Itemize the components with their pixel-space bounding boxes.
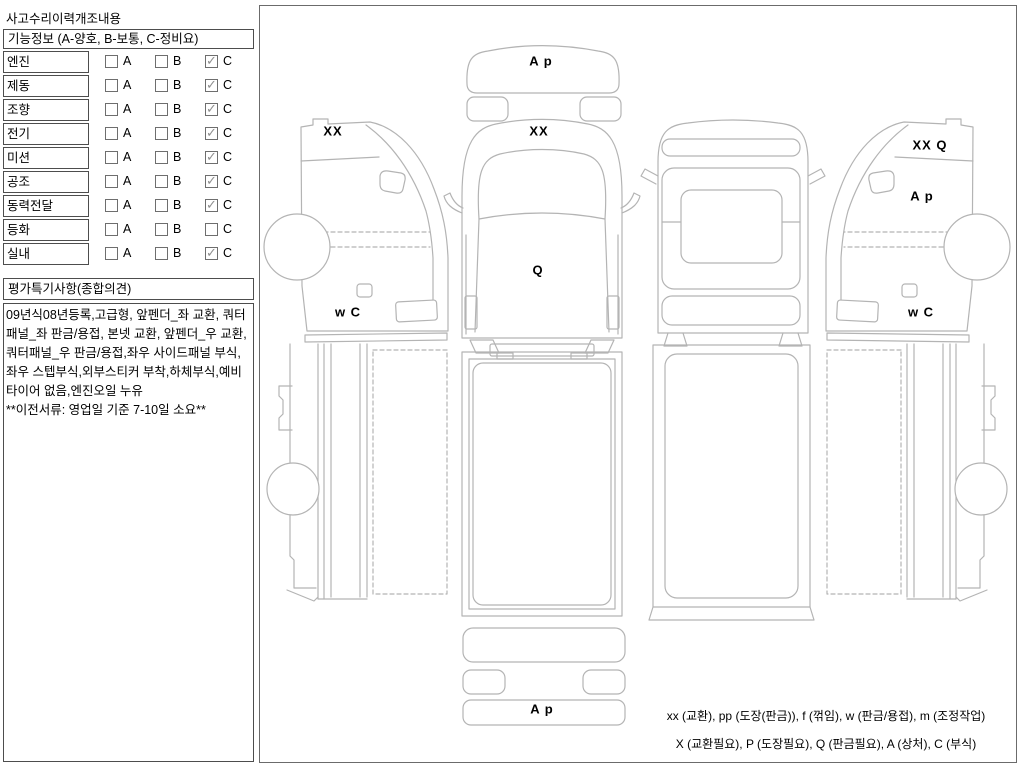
- checkbox-b[interactable]: [155, 127, 168, 140]
- checkbox-c[interactable]: [205, 55, 218, 68]
- checkbox-c[interactable]: [205, 199, 218, 212]
- function-label: 동력전달: [3, 195, 89, 217]
- checkbox-b[interactable]: [155, 103, 168, 116]
- grade-letter: B: [173, 222, 181, 236]
- grade-letter: A: [123, 78, 131, 92]
- function-row-steering: 조향 A B C: [3, 99, 254, 121]
- function-row-interior: 실내 A B C: [3, 243, 254, 265]
- grade-letter: B: [173, 246, 181, 260]
- legend-line-2: X (교환필요), P (도장필요), Q (판금필요), A (상처), C …: [640, 730, 1012, 758]
- checkbox-b[interactable]: [155, 199, 168, 212]
- grade-letter: B: [173, 174, 181, 188]
- checkbox-b[interactable]: [155, 247, 168, 260]
- grade-letter: A: [123, 174, 131, 188]
- grade-letter: A: [123, 222, 131, 236]
- grade-letter: C: [223, 174, 232, 188]
- grade-letter: C: [223, 126, 232, 140]
- grade-letter: C: [223, 102, 232, 116]
- function-row-mission: 미션 A B C: [3, 147, 254, 169]
- checkbox-c[interactable]: [205, 79, 218, 92]
- checkbox-a[interactable]: [105, 247, 118, 260]
- function-label: 전기: [3, 123, 89, 145]
- function-row-lights: 등화 A B C: [3, 219, 254, 241]
- checkbox-a[interactable]: [105, 199, 118, 212]
- function-row-aircon: 공조 A B C: [3, 171, 254, 193]
- checkbox-c[interactable]: [205, 127, 218, 140]
- checkbox-b[interactable]: [155, 175, 168, 188]
- checkbox-a[interactable]: [105, 175, 118, 188]
- grade-letter: B: [173, 150, 181, 164]
- checkbox-b[interactable]: [155, 151, 168, 164]
- damage-legend: xx (교환), pp (도장(판금)), f (꺾임), w (판금/용접),…: [640, 702, 1012, 758]
- function-row-electric: 전기 A B C: [3, 123, 254, 145]
- grade-letter: A: [123, 102, 131, 116]
- function-row-engine: 엔진 A B C: [3, 51, 254, 73]
- function-label: 공조: [3, 171, 89, 193]
- function-label: 엔진: [3, 51, 89, 73]
- checkbox-a[interactable]: [105, 127, 118, 140]
- function-row-powertrain: 동력전달 A B C: [3, 195, 254, 217]
- function-label: 등화: [3, 219, 89, 241]
- grade-letter: C: [223, 54, 232, 68]
- checkbox-c[interactable]: [205, 151, 218, 164]
- grade-letter: C: [223, 198, 232, 212]
- checkbox-a[interactable]: [105, 79, 118, 92]
- page-title: 사고수리이력개조내용: [6, 8, 121, 27]
- checkbox-b[interactable]: [155, 223, 168, 236]
- grade-letter: B: [173, 102, 181, 116]
- grade-letter: A: [123, 54, 131, 68]
- vehicle-diagram-panel: [259, 5, 1017, 763]
- grade-letter: C: [223, 150, 232, 164]
- opinion-header: 평가특기사항(종합의견): [3, 278, 254, 300]
- grade-letter: B: [173, 198, 181, 212]
- grade-letter: C: [223, 78, 232, 92]
- checkbox-a[interactable]: [105, 103, 118, 116]
- checkbox-b[interactable]: [155, 55, 168, 68]
- grade-letter: C: [223, 222, 232, 236]
- grade-letter: A: [123, 198, 131, 212]
- function-info-header: 기능정보 (A-양호, B-보통, C-정비요): [3, 29, 254, 49]
- opinion-text-box: 09년식08년등록,고급형, 앞펜더_좌 교환, 쿼터패널_좌 판금/용접, 본…: [3, 303, 254, 762]
- grade-letter: B: [173, 78, 181, 92]
- checkbox-b[interactable]: [155, 79, 168, 92]
- function-label: 실내: [3, 243, 89, 265]
- function-label: 미션: [3, 147, 89, 169]
- checkbox-c[interactable]: [205, 223, 218, 236]
- checkbox-a[interactable]: [105, 223, 118, 236]
- grade-letter: A: [123, 150, 131, 164]
- checkbox-a[interactable]: [105, 151, 118, 164]
- checkbox-c[interactable]: [205, 247, 218, 260]
- checkbox-a[interactable]: [105, 55, 118, 68]
- checkbox-c[interactable]: [205, 175, 218, 188]
- grade-letter: B: [173, 54, 181, 68]
- function-label: 제동: [3, 75, 89, 97]
- grade-letter: C: [223, 246, 232, 260]
- grade-letter: B: [173, 126, 181, 140]
- function-row-brake: 제동 A B C: [3, 75, 254, 97]
- checkbox-c[interactable]: [205, 103, 218, 116]
- grade-letter: A: [123, 246, 131, 260]
- grade-letter: A: [123, 126, 131, 140]
- function-label: 조향: [3, 99, 89, 121]
- legend-line-1: xx (교환), pp (도장(판금)), f (꺾임), w (판금/용접),…: [640, 702, 1012, 730]
